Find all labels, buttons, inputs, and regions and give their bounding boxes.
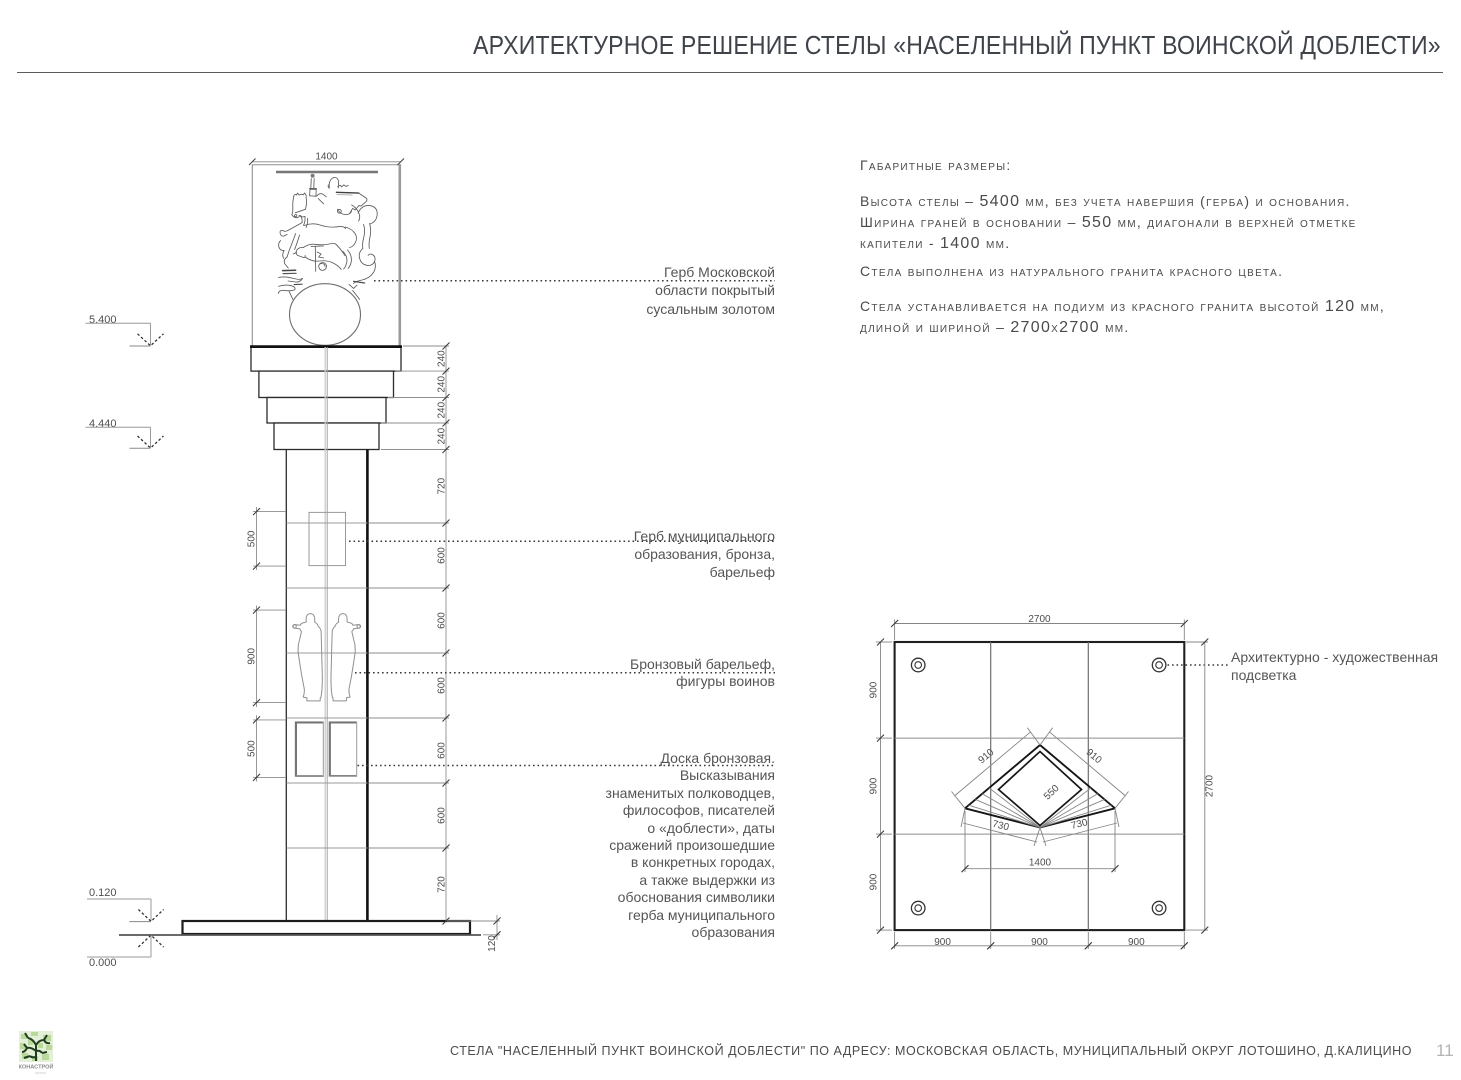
svg-text:900: 900: [869, 681, 880, 698]
svg-text:600: 600: [436, 742, 447, 759]
svg-text:240: 240: [436, 427, 447, 444]
svg-text:2700: 2700: [1028, 614, 1051, 625]
svg-text:240: 240: [436, 350, 447, 367]
svg-text:900: 900: [869, 873, 880, 890]
svg-text:600: 600: [436, 677, 447, 694]
svg-text:1400: 1400: [315, 152, 338, 163]
svg-text:550: 550: [1042, 783, 1062, 803]
svg-text:600: 600: [436, 547, 447, 564]
svg-text:2700: 2700: [1205, 774, 1216, 797]
svg-text:240: 240: [436, 401, 447, 418]
svg-text:1400: 1400: [1029, 858, 1052, 869]
svg-text:120: 120: [487, 935, 498, 952]
svg-text:500: 500: [246, 530, 257, 547]
svg-text:600: 600: [436, 612, 447, 629]
svg-text:600: 600: [436, 807, 447, 824]
svg-text:720: 720: [436, 477, 447, 494]
svg-text:900: 900: [1128, 937, 1145, 948]
svg-text:900: 900: [869, 777, 880, 794]
svg-text:720: 720: [436, 876, 447, 893]
svg-text:900: 900: [934, 937, 951, 948]
svg-text:500: 500: [246, 740, 257, 757]
svg-text:240: 240: [436, 376, 447, 393]
svg-text:900: 900: [1031, 937, 1048, 948]
svg-text:900: 900: [246, 648, 257, 665]
